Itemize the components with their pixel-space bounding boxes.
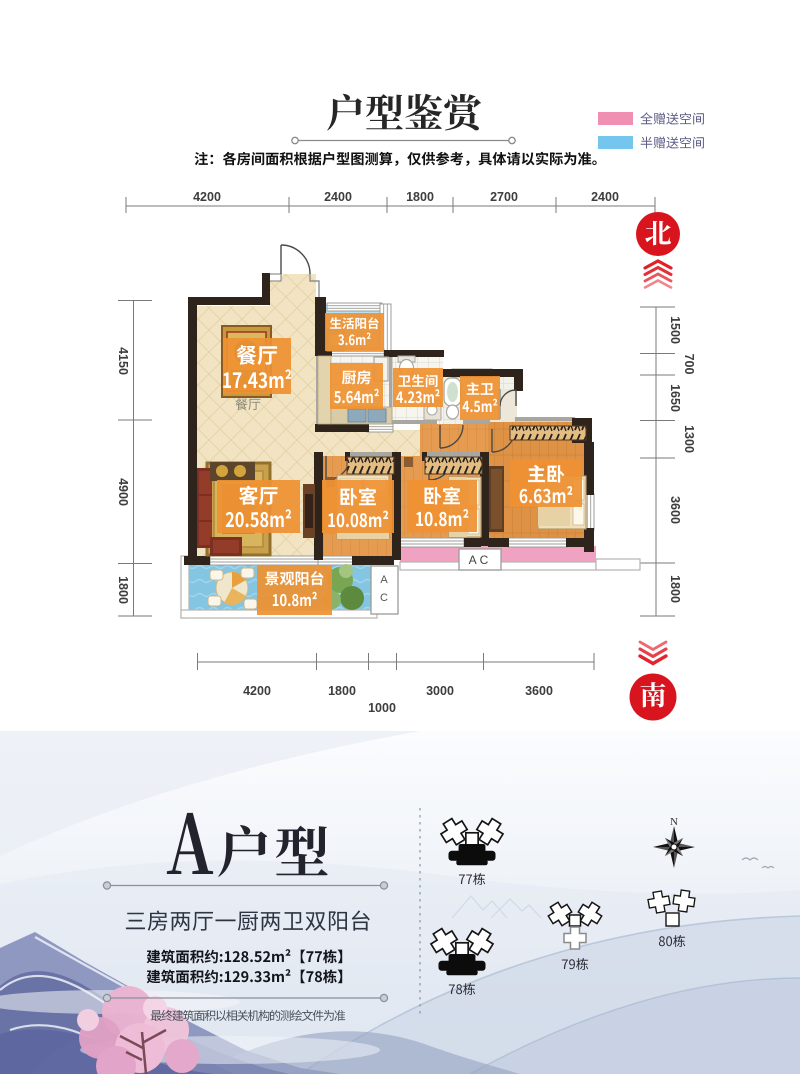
- svg-text:1800: 1800: [406, 190, 434, 204]
- svg-text:1000: 1000: [368, 701, 396, 715]
- svg-text:3600: 3600: [525, 684, 553, 698]
- svg-text:3600: 3600: [668, 496, 682, 524]
- svg-text:1300: 1300: [682, 425, 696, 453]
- svg-text:AC: AC: [469, 553, 492, 567]
- svg-text:1800: 1800: [116, 576, 130, 604]
- svg-text:4200: 4200: [193, 190, 221, 204]
- svg-text:2400: 2400: [324, 190, 352, 204]
- svg-text:C: C: [380, 592, 388, 604]
- svg-text:1500: 1500: [668, 316, 682, 344]
- svg-text:1650: 1650: [668, 384, 682, 412]
- svg-text:4200: 4200: [243, 684, 271, 698]
- svg-text:3000: 3000: [426, 684, 454, 698]
- svg-text:4900: 4900: [116, 478, 130, 506]
- svg-text:4150: 4150: [116, 347, 130, 375]
- svg-text:1800: 1800: [328, 684, 356, 698]
- svg-text:2700: 2700: [490, 190, 518, 204]
- svg-text:700: 700: [682, 354, 696, 375]
- svg-text:1800: 1800: [668, 575, 682, 603]
- svg-text:A: A: [380, 574, 388, 586]
- svg-text:2400: 2400: [591, 190, 619, 204]
